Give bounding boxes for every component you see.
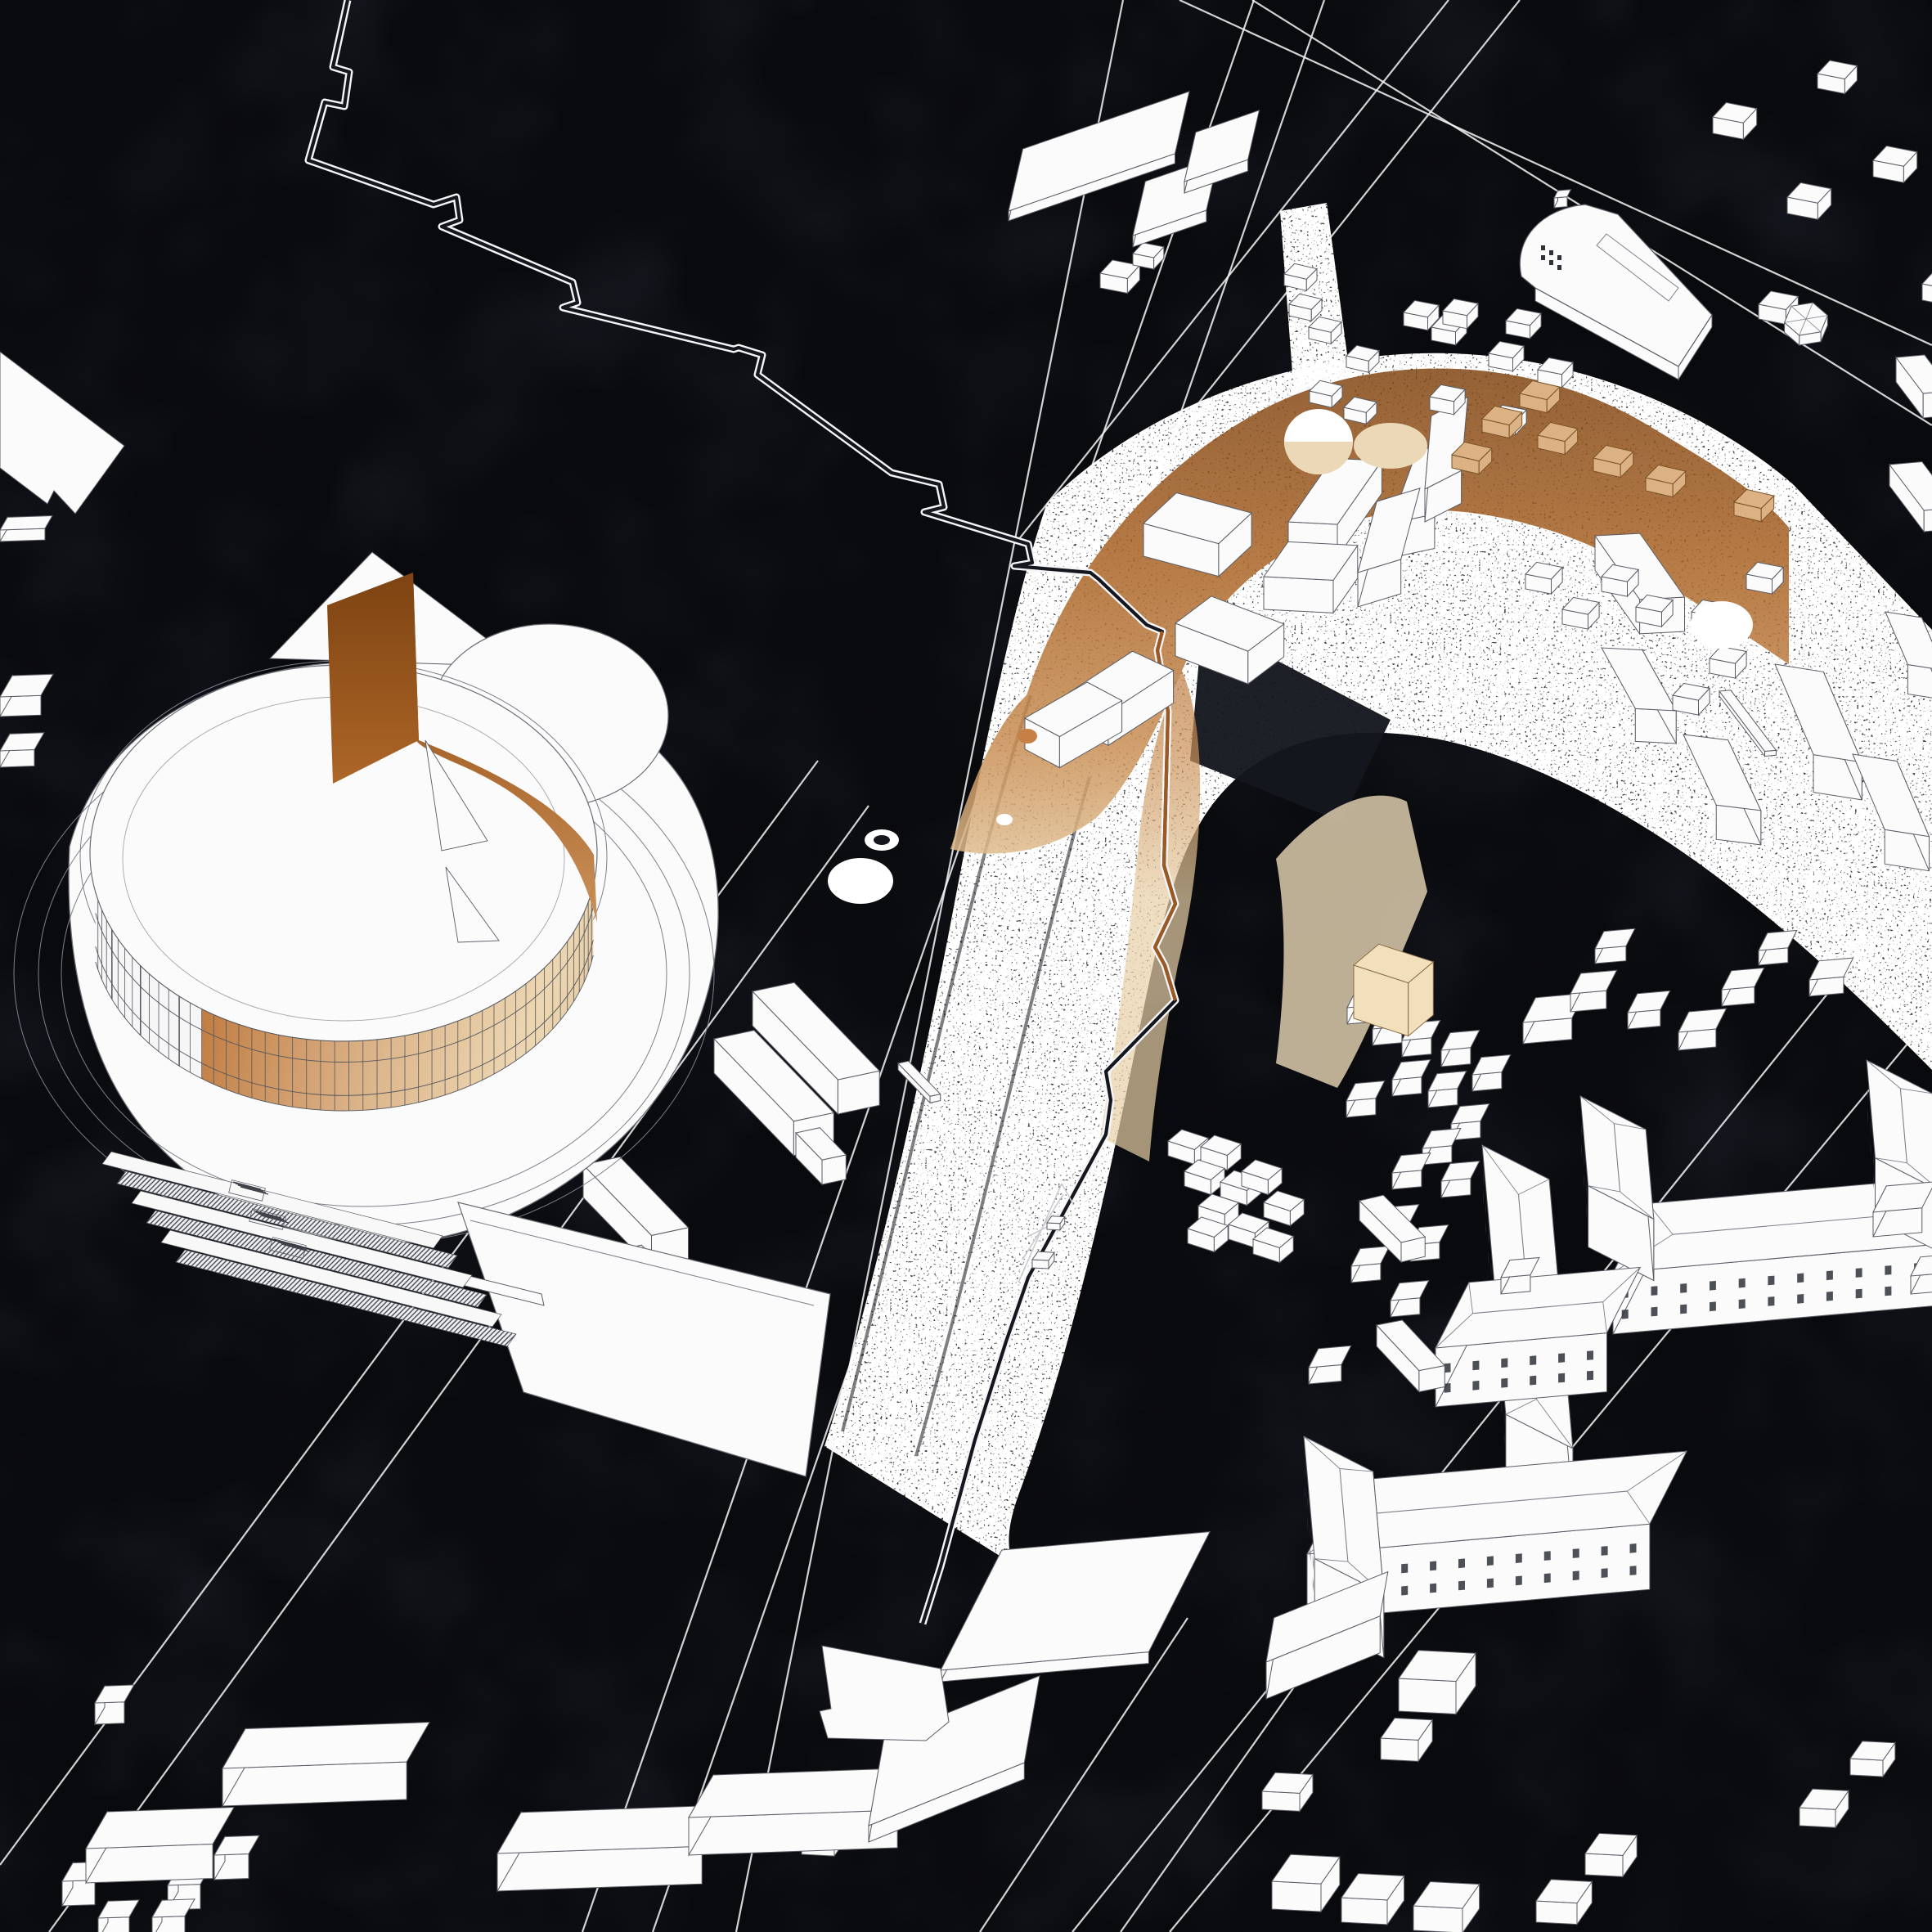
box-building — [0, 516, 52, 542]
tree — [828, 858, 893, 904]
box-building — [1354, 944, 1433, 1036]
site-plan — [0, 0, 1932, 1932]
tree-orange — [1018, 729, 1037, 744]
box-building — [86, 1808, 234, 1884]
tree — [996, 814, 1013, 825]
tree-cream — [1354, 423, 1427, 469]
box-building — [222, 1723, 429, 1807]
tree — [1691, 601, 1753, 649]
site-plan-svg — [0, 0, 1932, 1932]
